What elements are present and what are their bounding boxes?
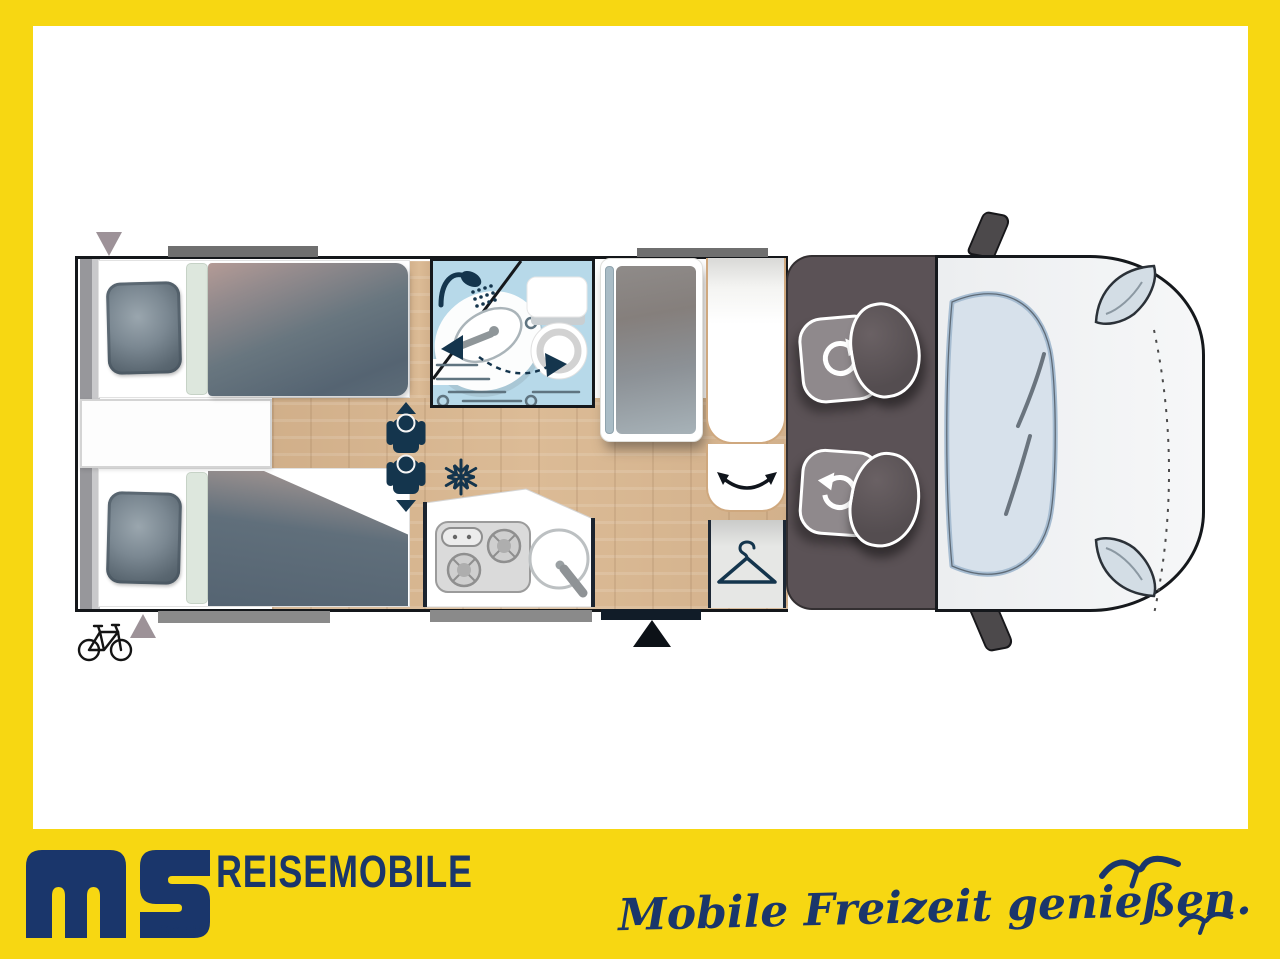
mattress-top — [208, 263, 408, 396]
window-marker-top-front — [637, 248, 768, 257]
dinette-seat-back — [706, 258, 786, 444]
snowflake-icon — [442, 458, 480, 496]
hanger-icon — [711, 538, 783, 590]
fridge-door-strip — [605, 266, 614, 434]
advert-image: GmbH REISEMOBILE Mobile Freizeit genieße… — [0, 0, 1280, 959]
window-marker-bottom-rear — [158, 611, 330, 623]
window-marker-bottom-kitchen — [430, 610, 592, 622]
pillow-top — [106, 281, 182, 375]
bicycle-icon — [76, 616, 134, 662]
bed-step-cabinet — [80, 399, 272, 468]
logo-sub-label: GmbH — [158, 922, 203, 939]
pillow-bottom — [106, 491, 182, 585]
fridge-panel — [616, 266, 696, 434]
bed-top-headboard — [186, 263, 208, 395]
vent-marker-top — [96, 232, 122, 256]
window-marker-top-rear — [168, 246, 318, 257]
door-swing-arrow-icon — [715, 470, 779, 502]
entry-door-marker — [601, 609, 701, 620]
entry-arrow-icon — [633, 620, 671, 647]
headlight-top — [1092, 260, 1162, 332]
wood-floor-strip — [408, 261, 430, 398]
windshield — [940, 276, 1080, 592]
bathroom-fixtures — [433, 261, 592, 405]
bathroom — [430, 258, 595, 408]
wardrobe — [708, 520, 786, 608]
seagull-icon-large — [1098, 850, 1182, 892]
kitchen-block — [422, 486, 596, 610]
company-name: REISEMOBILE — [216, 846, 473, 898]
person-icons — [385, 400, 427, 516]
bed-bottom-headboard — [186, 472, 208, 604]
stove-icon — [436, 522, 530, 592]
seagull-icon-small — [1178, 908, 1234, 938]
hood-line — [1146, 328, 1186, 616]
